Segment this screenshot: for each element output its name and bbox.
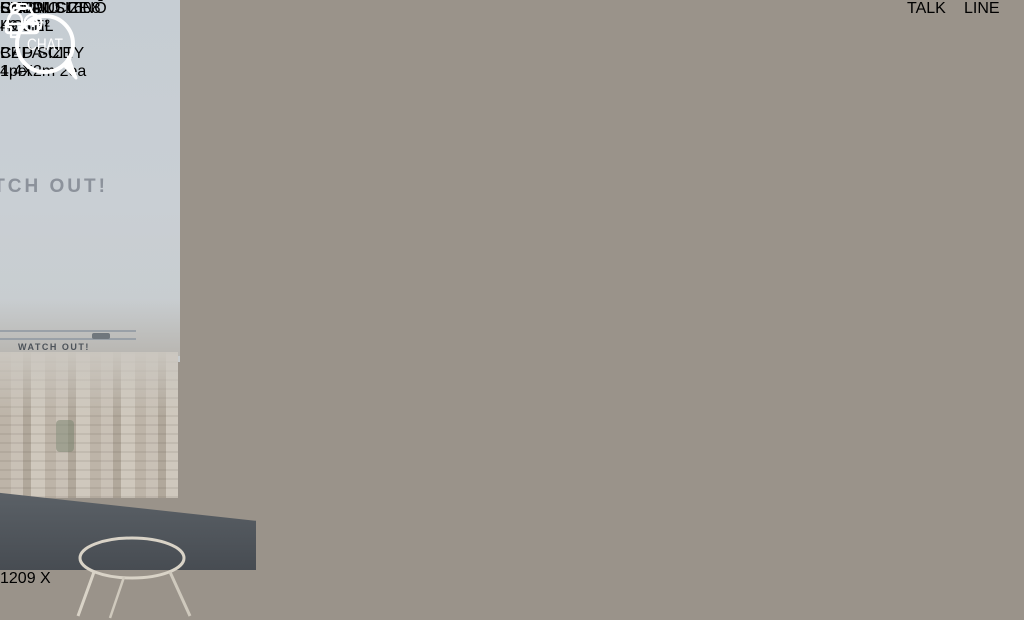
- window-frame-column: [130, 104, 166, 620]
- balustrade-bracket: [92, 333, 110, 339]
- pillow: [0, 284, 40, 338]
- chat-label: CHAT: [27, 36, 64, 55]
- glass-warning-text-large: WATCH OUT!: [0, 176, 178, 198]
- wire-chair: [52, 532, 217, 620]
- city-haze: [0, 298, 180, 356]
- line-icon[interactable]: LINE: [964, 0, 1000, 18]
- glass-warning-text-small: WATCH OUT!: [18, 342, 90, 352]
- bed-sheet: [0, 458, 234, 506]
- balcony-parapet: [0, 488, 256, 570]
- pallet-stamp: 150: [0, 506, 27, 523]
- bed-sheet: [0, 416, 192, 458]
- room-photo-background: WATCH OUT! WATCH OUT!: [0, 0, 1024, 620]
- room-detail-page: WATCH OUT! WATCH OUT!: [0, 0, 1024, 620]
- pillow: [0, 168, 103, 228]
- pillow: [0, 98, 90, 134]
- line-bubble-glyph: LINE: [964, 0, 1000, 18]
- pallet-bed-base: 150: [0, 506, 112, 570]
- chat-bubble-icon: CHAT: [0, 0, 96, 96]
- city-view: [0, 352, 178, 498]
- kakaotalk-icon[interactable]: TALK: [907, 0, 946, 18]
- pillow: [0, 225, 108, 285]
- balustrade-rail: [0, 338, 136, 340]
- pillow: [0, 376, 106, 416]
- city-trees: [56, 420, 74, 452]
- chat-button[interactable]: CHAT: [0, 0, 96, 101]
- talk-bubble-glyph: TALK: [907, 0, 946, 18]
- pillow: [0, 134, 82, 170]
- pallet-stamp: 1209: [0, 570, 36, 587]
- pillow: [0, 338, 98, 376]
- pallet-bed-base: 1209 X: [0, 570, 396, 620]
- pallet-stamp: X: [40, 570, 51, 587]
- balustrade-rail: [0, 330, 136, 332]
